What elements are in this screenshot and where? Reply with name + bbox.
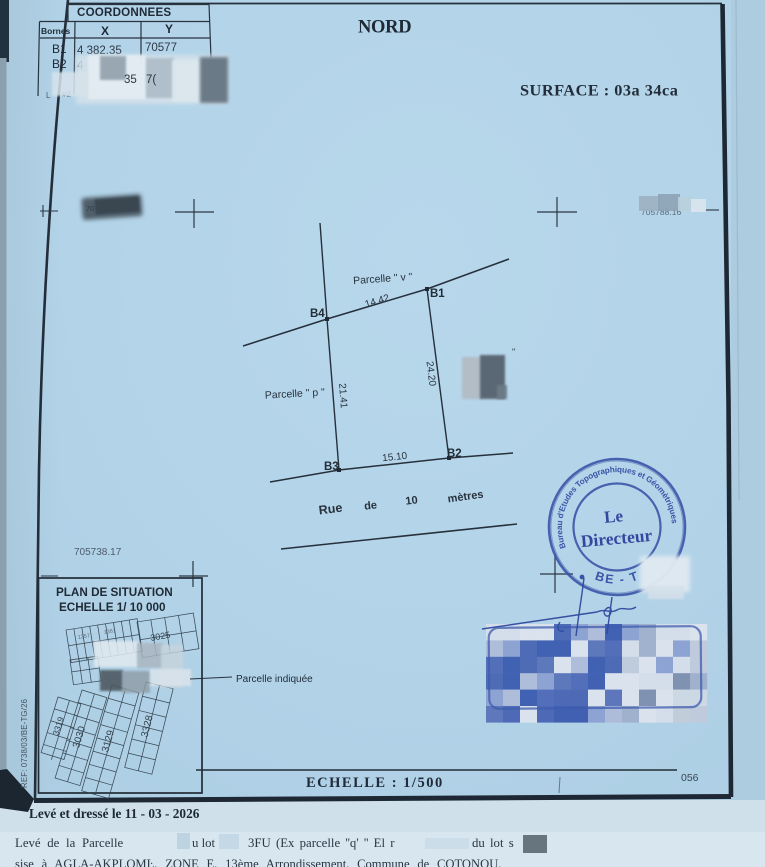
svg-text:Bornes: Bornes bbox=[41, 26, 71, 36]
svg-text:Le: Le bbox=[603, 506, 624, 527]
svg-text:056: 056 bbox=[681, 772, 699, 784]
svg-text:REF: 0738/03/BE-TG/26: REF: 0738/03/BE-TG/26 bbox=[20, 699, 29, 788]
svg-text:35: 35 bbox=[124, 74, 137, 86]
svg-text:L: L bbox=[46, 91, 51, 100]
svg-text:X: X bbox=[101, 24, 109, 38]
svg-text:de: de bbox=[364, 499, 378, 512]
svg-text:705738.17: 705738.17 bbox=[74, 547, 122, 558]
svg-text:7(: 7( bbox=[146, 74, 156, 86]
svg-text:ECHELLE : 1/500: ECHELLE : 1/500 bbox=[306, 775, 444, 791]
svg-text:Levé de la Parcelle: Levé de la Parcelle bbox=[15, 836, 124, 850]
svg-text:": " bbox=[512, 347, 515, 357]
svg-text:ECHELLE 1/ 10 000: ECHELLE 1/ 10 000 bbox=[59, 601, 166, 614]
svg-text:Parcelle indiquée: Parcelle indiquée bbox=[236, 674, 313, 685]
svg-text:sise à AGLA-AKPLOMĿ, ZONE: sise à AGLA-AKPLOMĿ, ZONE E, 13ème Arron… bbox=[15, 857, 501, 867]
svg-text:B1: B1 bbox=[52, 42, 67, 56]
svg-text:SURFACE : 03a 34ca: SURFACE : 03a 34ca bbox=[520, 81, 678, 100]
svg-text:3FU (Ex parcelle ''q' '': 3FU (Ex parcelle ''q' '' El r bbox=[248, 836, 395, 850]
svg-text:NORD: NORD bbox=[358, 18, 411, 38]
svg-text:COORDONNEES: COORDONNEES bbox=[77, 6, 171, 19]
svg-text:B2: B2 bbox=[52, 57, 67, 71]
svg-text:Levé et dressé le 11 - 03 - 2: Levé et dressé le 11 - 03 - 2026 bbox=[29, 806, 200, 821]
svg-text:B1: B1 bbox=[430, 288, 445, 300]
svg-text:70: 70 bbox=[86, 204, 94, 213]
svg-text:du lot s: du lot s bbox=[472, 836, 514, 850]
svg-text:u lot: u lot bbox=[192, 836, 216, 850]
svg-text:PLAN DE SITUATION: PLAN DE SITUATION bbox=[56, 586, 173, 599]
svg-text:21.41: 21.41 bbox=[336, 383, 349, 409]
svg-text:Y: Y bbox=[165, 22, 173, 36]
svg-text:Rue: Rue bbox=[318, 501, 343, 518]
svg-text:B4: B4 bbox=[310, 308, 325, 320]
svg-text:70577: 70577 bbox=[145, 42, 177, 54]
svg-text:B3: B3 bbox=[324, 461, 339, 473]
svg-text:10: 10 bbox=[405, 494, 419, 507]
svg-text:B2: B2 bbox=[447, 448, 462, 460]
